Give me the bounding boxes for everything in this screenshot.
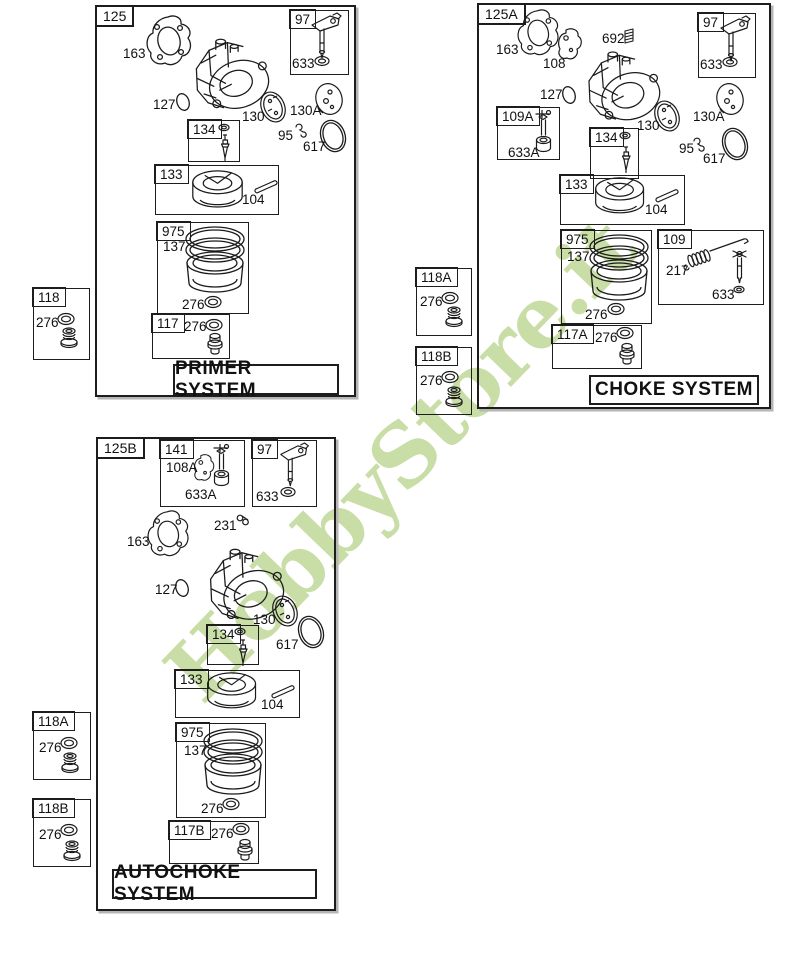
choke-float-group-tab: 133: [559, 174, 594, 194]
choke-box-id-tab: 125A: [477, 3, 526, 25]
part-label-throttle-plate: 130: [637, 119, 660, 133]
part-label-choke-plate: 108A: [166, 461, 198, 475]
choke-bulb-group-a-tab: 118A: [415, 267, 458, 287]
choke-bowl-group-tab: 975: [560, 229, 595, 249]
part-label-float-pin: 104: [242, 193, 265, 207]
choke-nut-group-tab: 117A: [551, 324, 594, 344]
part-label-oring-inlet: 127: [153, 98, 176, 112]
autochoke-needle-group-box: 134: [207, 625, 259, 665]
primer-system-title: PRIMER SYSTEM: [173, 364, 339, 395]
primer-bowl-group-tab: 975: [156, 221, 191, 241]
choke-float-group-box: 133: [560, 175, 685, 225]
part-label-choke-shaft-seal: 633A: [185, 488, 217, 502]
autochoke-throttle-group-tab: 97: [251, 439, 278, 459]
autochoke-float-group-tab: 133: [174, 669, 209, 689]
parts-diagram-page: HobbyStore.it: [0, 0, 800, 955]
autochoke-nut-group-tab: 117B: [168, 820, 211, 840]
part-label-bowl-oring: 276: [182, 298, 205, 312]
primer-needle-group-tab: 134: [187, 119, 222, 139]
part-label-bulb-a-oring: 276: [420, 295, 443, 309]
primer-bulb-group-tab: 118: [32, 287, 66, 307]
part-label-spring-small: 692: [602, 32, 625, 46]
choke-needle-group-tab: 134: [589, 127, 624, 147]
part-label-choke-plate: 108: [543, 57, 566, 71]
choke-bulb-group-b-tab: 118B: [415, 346, 458, 366]
part-label-gasket: 163: [127, 535, 150, 549]
part-label-spacer-disc: 130A: [693, 110, 725, 124]
primer-needle-group-box: 134: [188, 120, 240, 162]
part-label-oring-inlet: 127: [155, 583, 178, 597]
choke-spring-group-tab: 109: [657, 229, 692, 249]
part-label-spring-shaft-seal: 633: [712, 288, 735, 302]
part-label-float-pin: 104: [645, 203, 668, 217]
primer-float-group-box: 133: [155, 165, 279, 215]
part-label-nut-oring: 276: [184, 320, 207, 334]
part-label-oring-large: 617: [303, 140, 326, 154]
choke-throttle-group-tab: 97: [697, 12, 724, 32]
part-label-nut-oring: 276: [211, 827, 234, 841]
autochoke-bowl-group-tab: 975: [175, 722, 210, 742]
part-label-spring-link: 217: [666, 264, 689, 278]
primer-nut-group-tab: 117: [151, 313, 185, 333]
autochoke-bulb-group-a-tab: 118A: [32, 711, 75, 731]
autochoke-choke-group-tab: 141: [159, 439, 194, 459]
primer-throttle-group-tab: 97: [289, 9, 316, 29]
part-label-bowl-oring: 276: [201, 802, 224, 816]
part-label-bulb-oring: 276: [36, 316, 59, 330]
part-label-bowl-ring: 137: [184, 744, 207, 758]
part-label-oring-large: 617: [276, 638, 299, 652]
choke-shaft-group-tab: 109A: [496, 106, 540, 126]
part-label-float-pin: 104: [261, 698, 284, 712]
part-label-oring-inlet: 127: [540, 88, 563, 102]
autochoke-system-title: AUTOCHOKE SYSTEM: [112, 869, 317, 899]
part-label-clip: 95: [679, 142, 694, 156]
part-label-throttle-seal: 633: [700, 58, 723, 72]
part-label-choke-shaft-seal: 633A: [508, 146, 540, 160]
primer-float-group-tab: 133: [154, 164, 189, 184]
part-label-clip: 95: [278, 129, 293, 143]
part-label-gasket: 163: [123, 47, 146, 61]
part-label-bulb-a-oring: 276: [39, 741, 62, 755]
part-label-bowl-ring: 137: [567, 250, 590, 264]
part-label-clip: 231: [214, 519, 237, 533]
part-label-bowl-ring: 137: [163, 240, 186, 254]
part-label-nut-oring: 276: [595, 331, 618, 345]
part-label-bowl-oring: 276: [585, 308, 608, 322]
choke-system-title: CHOKE SYSTEM: [589, 375, 759, 405]
autochoke-box-id-tab: 125B: [96, 437, 145, 459]
choke-needle-group-box: 134: [590, 128, 639, 179]
part-label-gasket: 163: [496, 43, 519, 57]
part-label-oring-large: 617: [703, 152, 726, 166]
part-label-bulb-b-oring: 276: [420, 374, 443, 388]
primer-box-id-tab: 125: [95, 5, 134, 27]
part-label-throttle-seal: 633: [256, 490, 279, 504]
autochoke-bulb-group-b-tab: 118B: [32, 798, 75, 818]
part-label-throttle-plate: 130: [253, 613, 276, 627]
part-label-throttle-plate: 130: [242, 110, 265, 124]
autochoke-needle-group-tab: 134: [206, 624, 241, 644]
part-label-spacer-disc: 130A: [290, 104, 322, 118]
part-label-throttle-seal: 633: [292, 57, 315, 71]
part-label-bulb-b-oring: 276: [39, 828, 62, 842]
